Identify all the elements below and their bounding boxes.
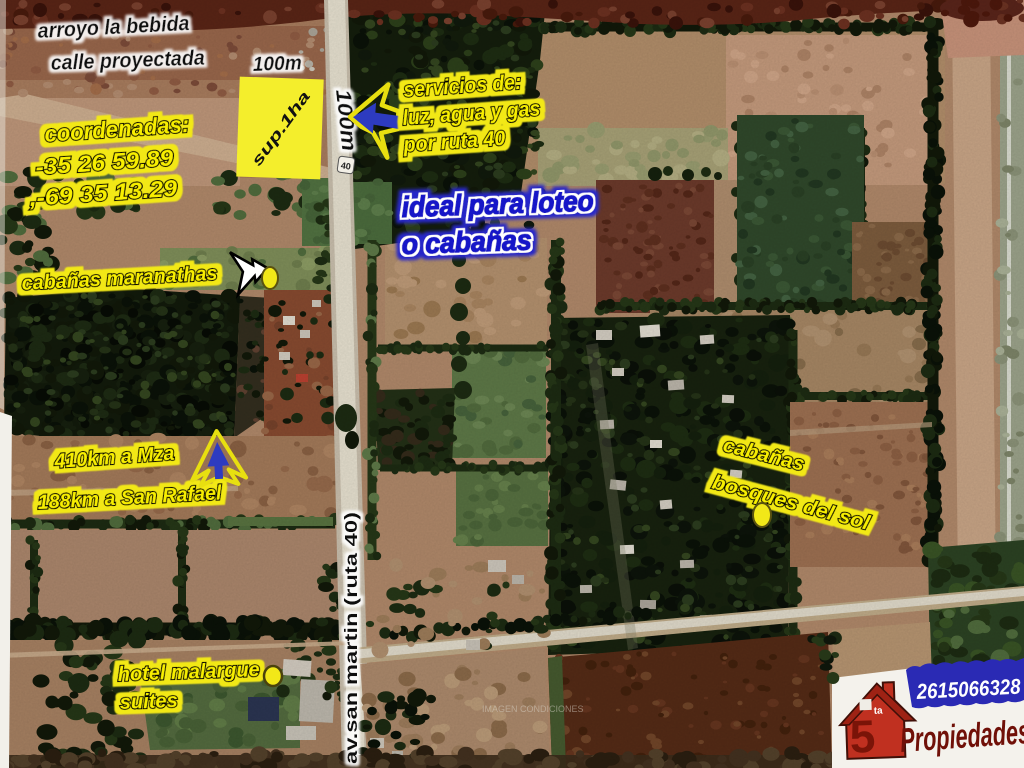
svg-text:IMAGEN CONDICIONES: IMAGEN CONDICIONES (482, 704, 584, 714)
svg-text:o cabañas: o cabañas (401, 224, 532, 261)
svg-text:ta: ta (874, 706, 884, 717)
svg-text:5: 5 (849, 710, 876, 763)
svg-text:suites: suites (119, 690, 178, 714)
svg-text:100m: 100m (252, 52, 302, 76)
svg-text:av.san martin (ruta 40): av.san martin (ruta 40) (341, 512, 361, 764)
svg-text:40: 40 (340, 160, 351, 171)
svg-text:ideal para loteo: ideal para loteo (401, 185, 594, 224)
